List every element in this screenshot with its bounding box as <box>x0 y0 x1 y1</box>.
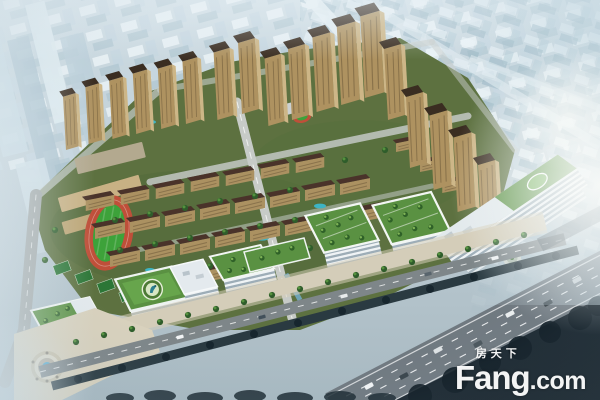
watermark-latin-text: Fang .com <box>455 361 586 394</box>
scene-canvas <box>0 0 600 400</box>
watermark-suffix: .com <box>530 369 586 394</box>
watermark-brand: Fang <box>455 361 530 394</box>
aerial-rendering: 房天下 Fang .com <box>0 0 600 400</box>
atmosphere <box>0 0 600 400</box>
fang-watermark: 房天下 Fang .com <box>455 349 586 394</box>
